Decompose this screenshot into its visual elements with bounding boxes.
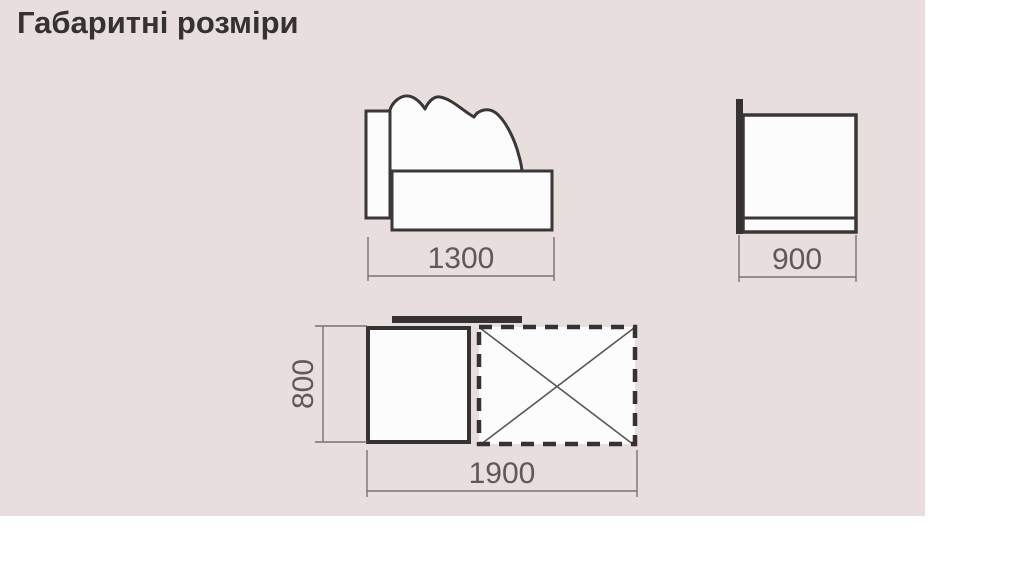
sofa-seat-shape bbox=[392, 171, 552, 230]
front-view-drawing: 1300 bbox=[355, 85, 565, 285]
top-view-drawing: 800 1900 bbox=[290, 310, 660, 510]
top-length-label: 1900 bbox=[469, 457, 536, 490]
top-backrest-shape bbox=[392, 316, 522, 323]
side-view-drawing: 900 bbox=[725, 85, 875, 285]
sofa-armrest-shape bbox=[366, 111, 390, 218]
top-depth-dimension bbox=[315, 326, 367, 442]
side-depth-label: 900 bbox=[772, 243, 822, 276]
top-depth-label: 800 bbox=[287, 359, 320, 409]
side-seat-shape bbox=[743, 115, 856, 232]
side-backrest-shape bbox=[736, 99, 743, 234]
page-title: Габаритні розміри bbox=[17, 5, 299, 41]
sofa-backrest-shape bbox=[389, 96, 522, 175]
dimensions-page: Габаритні розміри 1300 900 bbox=[0, 0, 1024, 576]
top-seat-shape bbox=[368, 328, 469, 442]
front-width-label: 1300 bbox=[428, 242, 495, 275]
